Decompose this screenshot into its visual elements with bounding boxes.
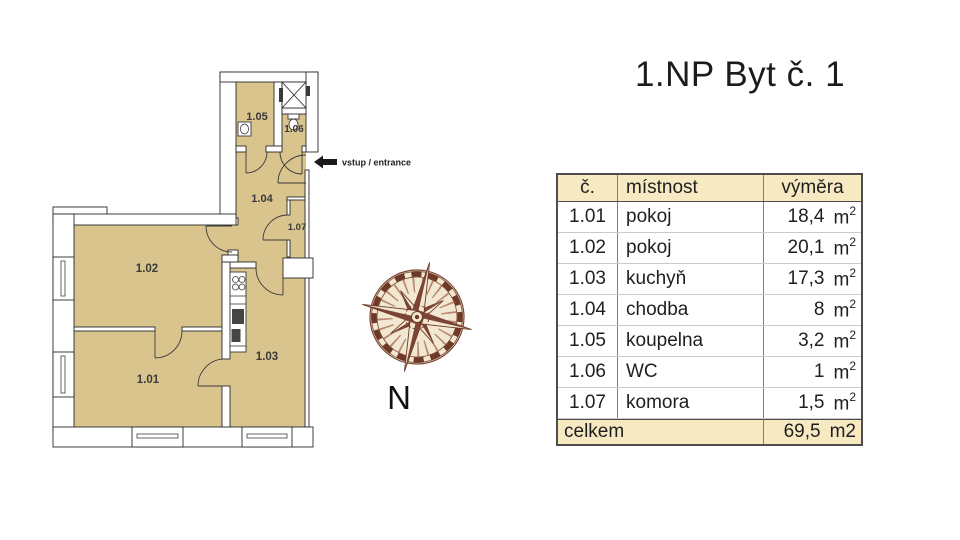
shaft [279, 82, 310, 108]
unit-base: m [833, 269, 849, 290]
cell-area: 3,2m2 [764, 326, 861, 356]
washbasin [238, 122, 251, 136]
area-value: 1 [814, 361, 825, 383]
entrance-marker: vstup / entrance [314, 156, 411, 169]
room-102 [74, 225, 238, 331]
area-unit: m2 [833, 360, 856, 384]
window [53, 257, 74, 300]
area-unit: m2 [833, 236, 856, 260]
table-row: 1.02 pokoj 20,1m2 [558, 233, 861, 264]
cell-area: 1m2 [764, 357, 861, 387]
table-row: 1.06 WC 1m2 [558, 357, 861, 388]
cell-area: 17,3m2 [764, 264, 861, 294]
cell-number: 1.04 [558, 295, 618, 325]
cell-room: kuchyň [618, 264, 764, 294]
room-label-106: 1.06 [284, 124, 304, 135]
compass-north-label: N [387, 379, 411, 416]
unit-base: m [833, 331, 849, 352]
cell-room: koupelna [618, 326, 764, 356]
header-number: č. [558, 175, 618, 201]
footer-total: 69,5m2 [764, 420, 861, 444]
shaft-hatch [306, 86, 310, 96]
kitchen-appliance [232, 329, 241, 342]
table-row: 1.03 kuchyň 17,3m2 [558, 264, 861, 295]
area-unit: m2 [833, 298, 856, 322]
unit-exp: 2 [849, 266, 856, 280]
area-value: 3,2 [798, 330, 824, 352]
cell-room: pokoj [618, 202, 764, 232]
kitchen-sink [232, 309, 244, 324]
window [132, 427, 183, 447]
room-label-107: 1.07 [288, 222, 307, 233]
header-area: výměra [764, 175, 861, 201]
entrance-arrow-icon [314, 156, 337, 169]
area-value: 1,5 [798, 392, 824, 414]
window [242, 427, 292, 447]
kitchen-counter [230, 272, 246, 352]
unit-exp: 2 [849, 297, 856, 311]
unit-exp: 2 [849, 328, 856, 342]
room-label-103: 1.03 [256, 351, 278, 363]
cell-area: 18,4m2 [764, 202, 861, 232]
unit-base: m [833, 300, 849, 321]
cell-room: chodba [618, 295, 764, 325]
unit-exp: 2 [849, 359, 856, 373]
cell-room: komora [618, 388, 764, 418]
cell-number: 1.03 [558, 264, 618, 294]
room-label-105: 1.05 [246, 111, 267, 123]
header-room: místnost [618, 175, 764, 201]
cell-number: 1.02 [558, 233, 618, 263]
cell-number: 1.07 [558, 388, 618, 418]
area-value: 20,1 [788, 237, 825, 259]
cell-area: 20,1m2 [764, 233, 861, 263]
cell-area: 1,5m2 [764, 388, 861, 418]
unit-exp: 2 [849, 390, 856, 404]
area-value: 18,4 [788, 206, 825, 228]
unit-exp: 2 [849, 235, 856, 249]
room-label-101: 1.01 [137, 374, 160, 386]
room-label-104: 1.04 [251, 193, 273, 205]
area-unit: m2 [833, 329, 856, 353]
room-area-table: č. místnost výměra 1.01 pokoj 18,4m2 1.0… [556, 173, 863, 446]
area-unit: m2 [833, 391, 856, 415]
unit-base: m [833, 362, 849, 383]
table-row: 1.05 koupelna 3,2m2 [558, 326, 861, 357]
unit-exp: 2 [849, 204, 856, 218]
area-unit: m2 [833, 267, 856, 291]
entrance-label: vstup / entrance [342, 158, 411, 168]
area-value: 17,3 [788, 268, 825, 290]
cell-number: 1.05 [558, 326, 618, 356]
cell-area: 8m2 [764, 295, 861, 325]
compass-rose [350, 250, 484, 384]
table-row: 1.01 pokoj 18,4m2 [558, 202, 861, 233]
cell-room: pokoj [618, 233, 764, 263]
table-row: 1.04 chodba 8m2 [558, 295, 861, 326]
slide: 1.01 1.02 1.03 1.04 1.05 1.06 1.07 vstup… [0, 0, 960, 540]
area-value: 8 [814, 299, 825, 321]
footer-label: celkem [558, 420, 764, 444]
room-fills [74, 82, 306, 427]
cell-room: WC [618, 357, 764, 387]
shaft-hatch [279, 88, 283, 102]
total-value: 69,5 [784, 421, 821, 443]
table-footer-row: celkem 69,5m2 [558, 419, 861, 444]
room-label-102: 1.02 [136, 263, 158, 275]
area-unit: m2 [833, 205, 856, 229]
unit-base: m [833, 207, 849, 228]
table-header-row: č. místnost výměra [558, 175, 861, 202]
page-title: 1.NP Byt č. 1 [580, 55, 900, 95]
table-row: 1.07 komora 1,5m2 [558, 388, 861, 419]
total-unit: m2 [830, 421, 856, 443]
cell-number: 1.01 [558, 202, 618, 232]
window [53, 352, 74, 397]
unit-base: m [833, 238, 849, 259]
cell-number: 1.06 [558, 357, 618, 387]
unit-base: m [833, 393, 849, 414]
